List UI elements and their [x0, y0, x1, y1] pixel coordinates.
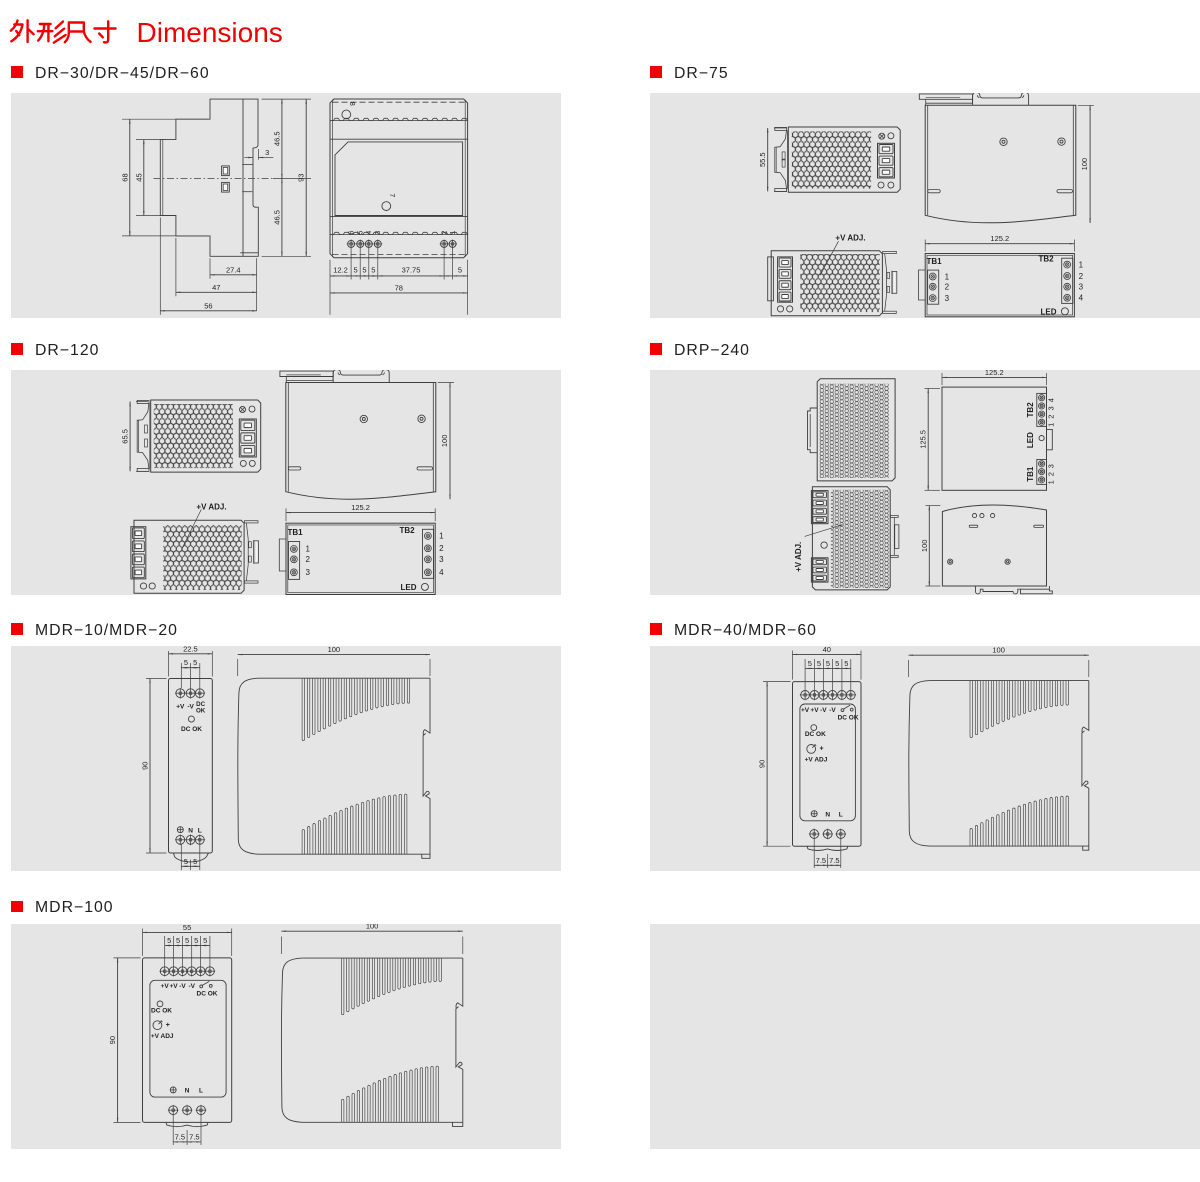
svg-text:68: 68 [120, 173, 129, 181]
svg-text:4: 4 [439, 568, 444, 577]
svg-text:1: 1 [945, 272, 950, 281]
svg-text:-V: -V [829, 707, 836, 714]
svg-text:7.5: 7.5 [816, 856, 826, 865]
svg-text:L: L [198, 827, 202, 834]
svg-text:+V ADJ: +V ADJ [151, 1032, 174, 1039]
svg-text:+V: +V [176, 703, 185, 710]
svg-text:100: 100 [366, 924, 379, 931]
svg-text:1: 1 [1046, 480, 1055, 484]
svg-text:DC OK: DC OK [838, 714, 859, 721]
svg-text:100: 100 [328, 646, 341, 654]
svg-text:TB1: TB1 [287, 528, 303, 537]
svg-text:1: 1 [1046, 423, 1055, 427]
svg-text:47: 47 [212, 283, 220, 292]
svg-text:3: 3 [1046, 406, 1055, 410]
svg-text:-V: -V [187, 703, 194, 710]
svg-text:N: N [185, 1087, 190, 1094]
svg-text:+V ADJ.: +V ADJ. [794, 542, 803, 572]
svg-text:DC OK: DC OK [181, 726, 202, 733]
svg-text:100: 100 [920, 540, 929, 553]
svg-text:5: 5 [844, 659, 848, 668]
svg-text:5: 5 [194, 936, 198, 945]
svg-text:TB2: TB2 [1038, 254, 1054, 263]
svg-text:1: 1 [305, 545, 310, 554]
svg-text:5: 5 [354, 265, 358, 274]
svg-text:+V: +V [161, 983, 170, 990]
svg-text:5: 5 [167, 936, 171, 945]
svg-text:3: 3 [305, 568, 310, 577]
svg-text:12.2: 12.2 [333, 265, 348, 274]
svg-text:2: 2 [1079, 272, 1084, 281]
svg-text:4: 4 [1079, 294, 1084, 303]
svg-text:5: 5 [835, 659, 839, 668]
svg-text:5: 5 [184, 857, 188, 866]
svg-text:55.5: 55.5 [758, 152, 767, 167]
svg-text:TB1: TB1 [926, 257, 942, 266]
svg-text:3: 3 [1079, 283, 1084, 292]
svg-text:5: 5 [458, 265, 462, 274]
svg-text:L: L [199, 1087, 203, 1094]
svg-text:65.5: 65.5 [121, 429, 130, 444]
svg-text:LED: LED [1026, 432, 1035, 448]
svg-text:40: 40 [823, 646, 831, 654]
svg-text:90: 90 [108, 1035, 117, 1043]
svg-text:+: + [166, 1022, 170, 1029]
svg-text:DC OK: DC OK [151, 1007, 172, 1014]
svg-text:7: 7 [388, 193, 395, 197]
svg-text:2: 2 [1046, 472, 1055, 476]
svg-text:DC OK: DC OK [805, 731, 826, 738]
svg-text:+: + [820, 746, 824, 753]
svg-text:45: 45 [134, 173, 143, 181]
svg-text:90: 90 [141, 762, 150, 770]
svg-text:5: 5 [203, 936, 207, 945]
svg-text:-V: -V [179, 983, 186, 990]
svg-text:-V: -V [188, 983, 195, 990]
svg-text:5: 5 [184, 658, 188, 667]
svg-text:+V: +V [170, 983, 179, 990]
svg-text:55: 55 [183, 924, 191, 932]
svg-text:1: 1 [439, 532, 444, 541]
svg-text:+V: +V [801, 707, 810, 714]
svg-text:5: 5 [817, 659, 821, 668]
svg-text:2: 2 [1046, 415, 1055, 419]
svg-text:-V: -V [820, 707, 827, 714]
svg-text:125.2: 125.2 [351, 503, 370, 512]
svg-text:90: 90 [758, 760, 767, 768]
svg-text:100: 100 [992, 646, 1005, 655]
svg-text:5: 5 [371, 265, 375, 274]
svg-text:56: 56 [204, 301, 212, 310]
svg-text:N: N [825, 811, 830, 818]
svg-text:+V ADJ: +V ADJ [805, 757, 828, 764]
svg-text:100: 100 [440, 435, 449, 448]
svg-text:5: 5 [193, 658, 197, 667]
svg-text:5: 5 [193, 857, 197, 866]
svg-text:3: 3 [265, 148, 269, 157]
svg-text:Dimensions: Dimensions [137, 17, 283, 48]
svg-text:3: 3 [1046, 464, 1055, 468]
svg-text:2: 2 [945, 283, 950, 292]
svg-text:46.5: 46.5 [272, 210, 281, 225]
svg-text:3: 3 [945, 294, 950, 303]
svg-text:27.4: 27.4 [226, 265, 241, 274]
svg-text:7.5: 7.5 [189, 1132, 199, 1141]
svg-text:OK: OK [196, 707, 206, 714]
svg-text:LED: LED [1041, 307, 1057, 316]
svg-text:8: 8 [348, 102, 355, 106]
svg-text:2: 2 [439, 544, 444, 553]
svg-text:TB2: TB2 [1026, 402, 1035, 418]
svg-text:93: 93 [297, 174, 306, 182]
svg-text:7.5: 7.5 [175, 1132, 185, 1141]
svg-text:5: 5 [185, 936, 189, 945]
svg-text:100: 100 [1080, 158, 1089, 171]
svg-text:TB2: TB2 [399, 526, 415, 535]
svg-text:N: N [188, 827, 193, 834]
svg-text:125.2: 125.2 [985, 370, 1004, 377]
svg-text:TB1: TB1 [1026, 466, 1035, 482]
svg-text:125.5: 125.5 [919, 430, 928, 449]
svg-text:5: 5 [808, 659, 812, 668]
svg-text:2: 2 [305, 555, 310, 564]
svg-text:+V ADJ.: +V ADJ. [835, 233, 865, 242]
svg-text:22.5: 22.5 [183, 646, 198, 653]
svg-text:5: 5 [362, 265, 366, 274]
svg-text:5: 5 [826, 659, 830, 668]
svg-text:+V: +V [810, 707, 819, 714]
svg-text:LED: LED [401, 583, 417, 592]
svg-text:7.5: 7.5 [829, 856, 839, 865]
svg-text:125.2: 125.2 [990, 234, 1009, 243]
svg-text:37.75: 37.75 [402, 265, 421, 274]
svg-text:3: 3 [439, 555, 444, 564]
svg-text:1: 1 [1079, 260, 1084, 269]
svg-text:5: 5 [176, 936, 180, 945]
svg-text:46.5: 46.5 [272, 131, 281, 146]
svg-text:4: 4 [1046, 398, 1055, 402]
svg-text:DC OK: DC OK [197, 990, 218, 997]
svg-text:78: 78 [395, 283, 403, 292]
svg-text:L: L [839, 811, 843, 818]
